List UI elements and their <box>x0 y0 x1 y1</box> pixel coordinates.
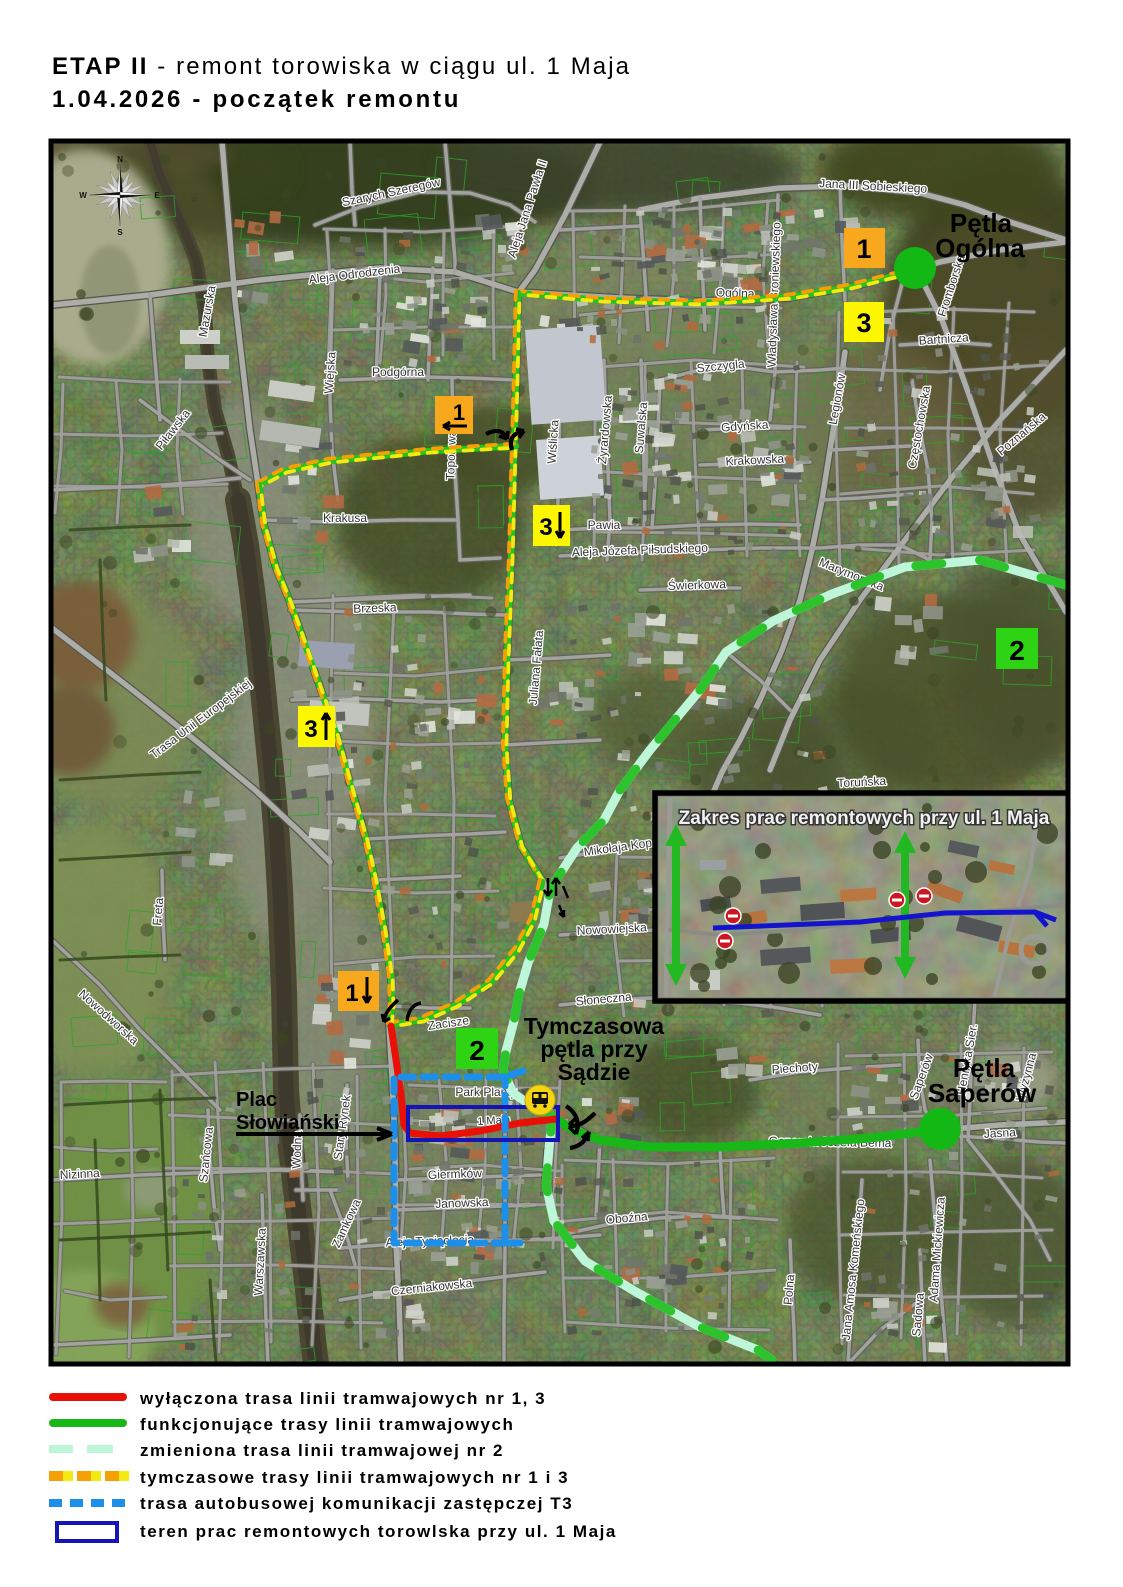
svg-text:Podgórna: Podgórna <box>372 365 424 379</box>
svg-text:Freta: Freta <box>150 897 166 926</box>
svg-text:Giermków: Giermków <box>428 1166 483 1182</box>
svg-text:Toruńska: Toruńska <box>837 774 887 791</box>
svg-text:Plac: Plac <box>236 1089 277 1111</box>
svg-text:Pawia: Pawia <box>588 518 621 532</box>
svg-text:3: 3 <box>539 514 552 541</box>
svg-text:Zakres prac remontowych przy u: Zakres prac remontowych przy ul. 1 Maja <box>679 808 1050 829</box>
svg-text:1: 1 <box>856 234 871 264</box>
svg-text:Krakusa: Krakusa <box>323 511 367 525</box>
svg-text:Nizinna: Nizinna <box>59 1166 100 1182</box>
svg-text:S: S <box>117 228 123 237</box>
svg-text:Polna: Polna <box>781 1273 798 1305</box>
svg-text:E: E <box>154 191 160 200</box>
svg-text:W: W <box>79 191 87 200</box>
svg-text:Topolowa: Topolowa <box>443 429 459 480</box>
svg-text:Wodna: Wodna <box>289 1130 304 1169</box>
svg-text:3: 3 <box>856 308 871 338</box>
svg-text:3: 3 <box>304 716 317 743</box>
svg-text:1: 1 <box>453 400 465 425</box>
svg-text:Jasna: Jasna <box>983 1125 1016 1141</box>
svg-text:Świerkowa: Świerkowa <box>668 576 727 593</box>
svg-text:Sądzie: Sądzie <box>558 1059 631 1085</box>
svg-text:Saperów: Saperów <box>928 1078 1037 1108</box>
svg-text:2: 2 <box>1009 635 1025 666</box>
svg-text:Słowiański: Słowiański <box>236 1112 339 1134</box>
svg-text:Ogólna: Ogólna <box>935 233 1025 263</box>
svg-text:1: 1 <box>345 980 358 1007</box>
svg-text:Brzeska: Brzeska <box>353 600 397 616</box>
svg-text:2: 2 <box>469 1035 485 1066</box>
svg-text:Wiejska: Wiejska <box>322 351 339 394</box>
svg-text:N: N <box>117 155 123 164</box>
svg-text:Janowska: Janowska <box>435 1195 489 1211</box>
